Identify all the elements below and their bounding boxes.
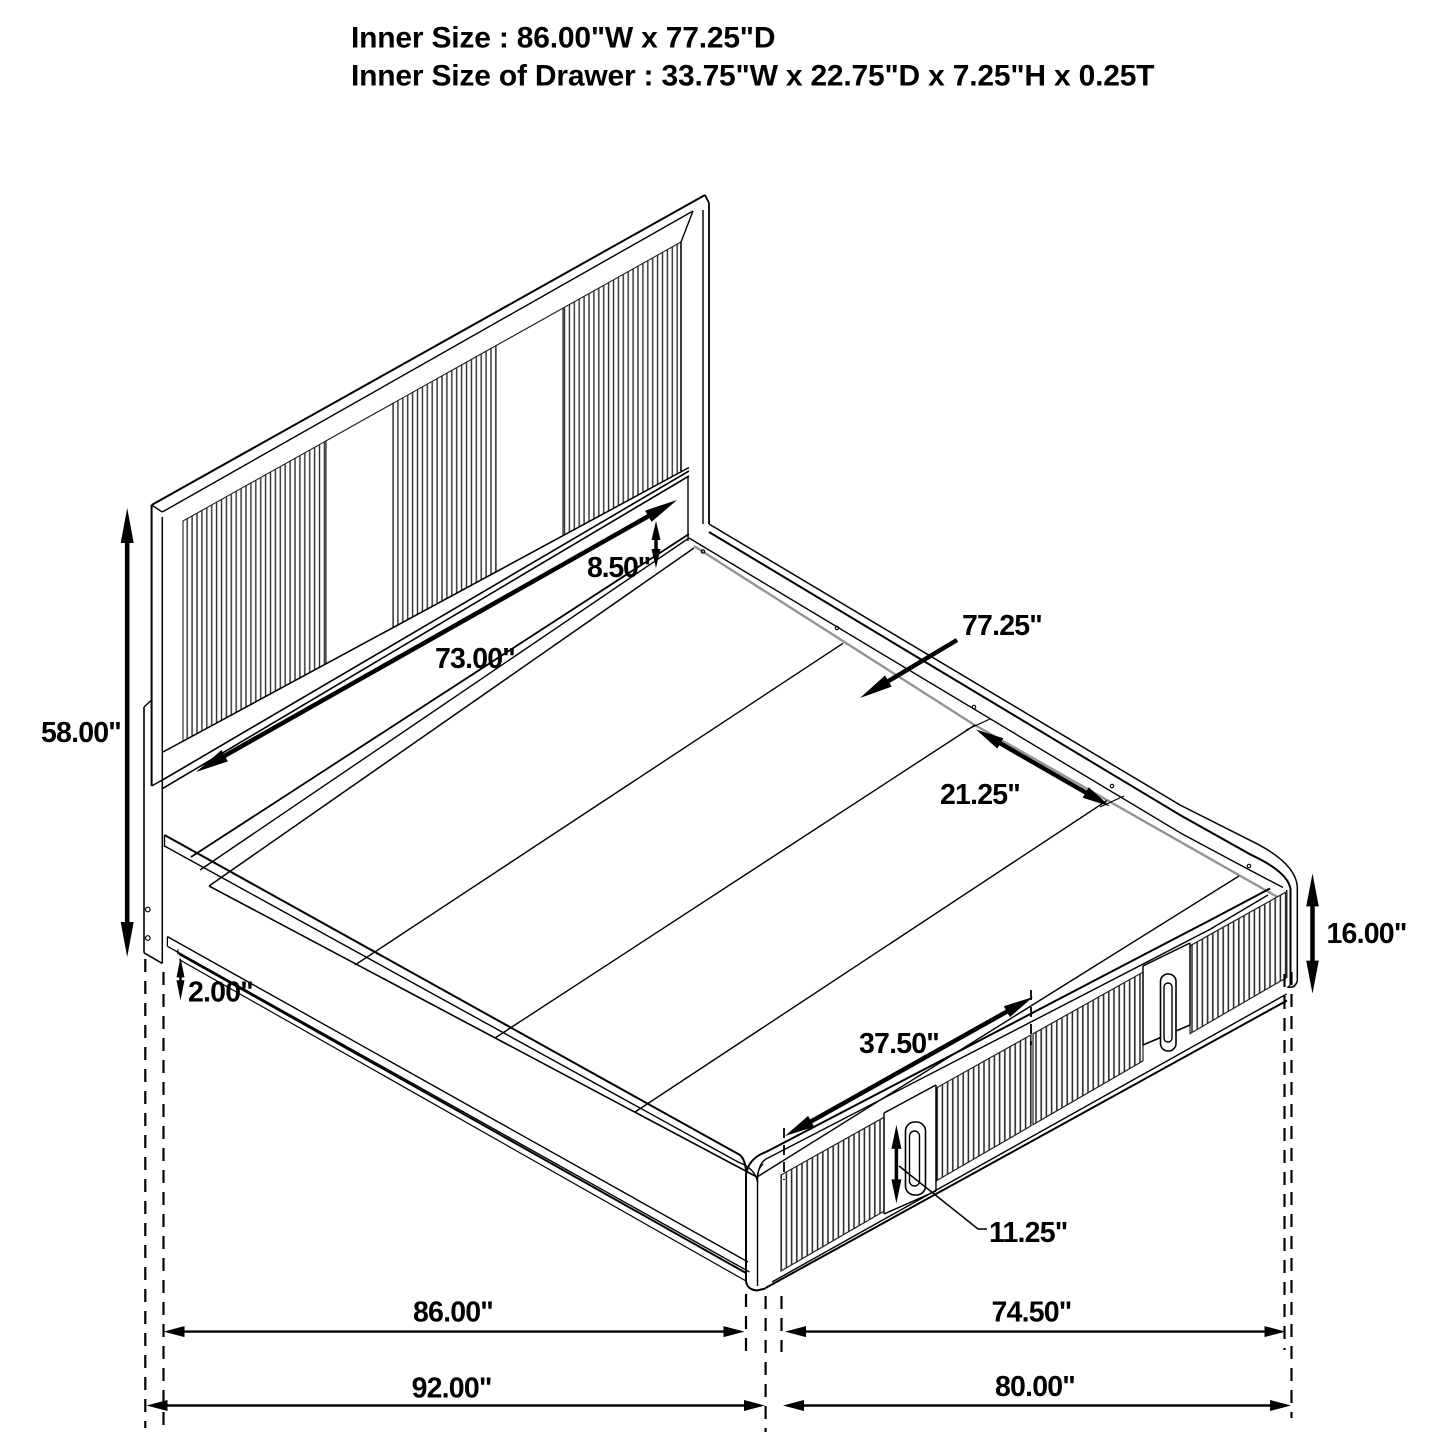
svg-text:37.50": 37.50" (859, 1028, 939, 1060)
svg-text:77.25": 77.25" (962, 610, 1042, 642)
svg-text:73.00": 73.00" (435, 643, 515, 675)
svg-text:Inner Size : 86.00"W x 77.25"D: Inner Size : 86.00"W x 77.25"D (351, 22, 775, 55)
svg-text:16.00": 16.00" (1327, 918, 1407, 950)
svg-text:11.25": 11.25" (989, 1217, 1067, 1249)
svg-text:86.00": 86.00" (413, 1297, 493, 1329)
svg-text:2.00": 2.00" (188, 977, 253, 1009)
svg-text:58.00": 58.00" (41, 717, 121, 749)
svg-text:80.00": 80.00" (995, 1371, 1075, 1403)
svg-text:Inner Size of Drawer : 33.75"W: Inner Size of Drawer : 33.75"W x 22.75"D… (351, 60, 1154, 93)
svg-text:21.25": 21.25" (940, 779, 1020, 811)
svg-text:8.50": 8.50" (587, 552, 650, 584)
svg-text:74.50": 74.50" (991, 1297, 1071, 1329)
svg-text:92.00": 92.00" (412, 1373, 492, 1405)
